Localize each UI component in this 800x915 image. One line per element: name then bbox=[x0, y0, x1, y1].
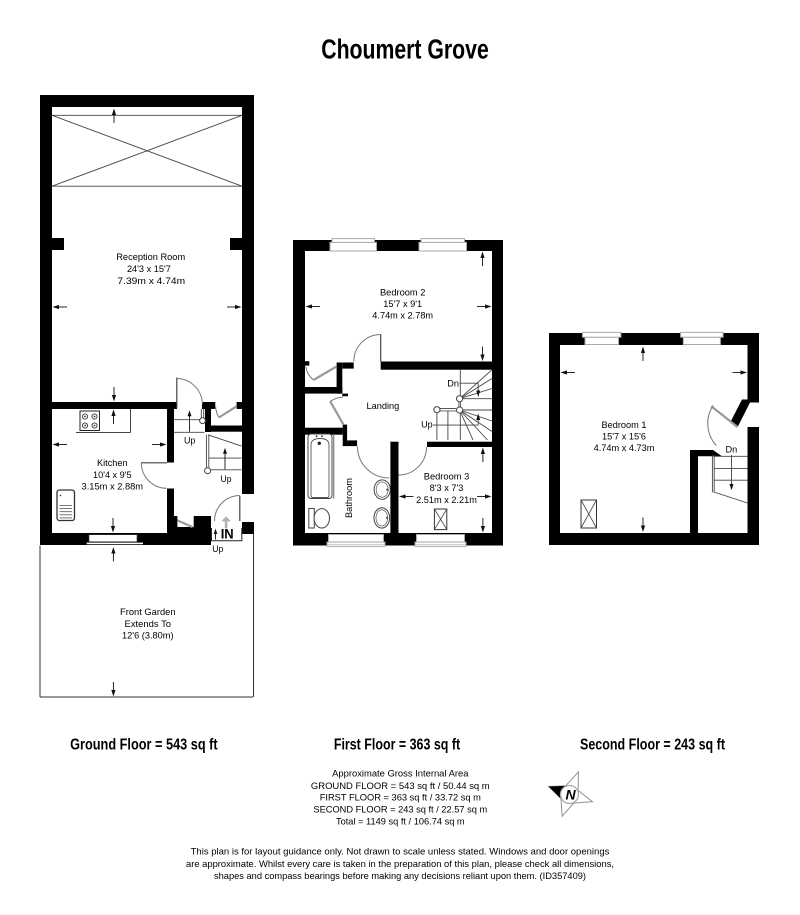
svg-text:Kitchen: Kitchen bbox=[97, 458, 128, 468]
svg-text:15'7 x 15'6: 15'7 x 15'6 bbox=[602, 431, 646, 441]
svg-text:Approximate Gross Internal Are: Approximate Gross Internal Area bbox=[332, 768, 469, 778]
svg-text:4.74m x 2.78m: 4.74m x 2.78m bbox=[372, 311, 433, 321]
svg-text:Ground Floor = 543 sq ft: Ground Floor = 543 sq ft bbox=[70, 737, 218, 754]
svg-text:Dn: Dn bbox=[447, 379, 459, 390]
svg-text:10'4 x 9'5: 10'4 x 9'5 bbox=[93, 470, 132, 480]
svg-text:IN: IN bbox=[221, 526, 234, 541]
svg-text:3.15m x 2.88m: 3.15m x 2.88m bbox=[82, 482, 144, 492]
svg-text:Landing: Landing bbox=[367, 401, 400, 411]
svg-text:FIRST FLOOR = 363 sq ft / 33.7: FIRST FLOOR = 363 sq ft / 33.72 sq m bbox=[320, 793, 481, 803]
svg-text:Bedroom 3: Bedroom 3 bbox=[424, 471, 470, 481]
svg-text:N: N bbox=[565, 787, 576, 803]
svg-text:Extends To: Extends To bbox=[125, 619, 172, 629]
svg-text:Dn: Dn bbox=[726, 445, 738, 456]
svg-text:SECOND FLOOR = 243 sq ft / 22.: SECOND FLOOR = 243 sq ft / 22.57 sq m bbox=[313, 805, 487, 815]
svg-text:12'6 (3.80m): 12'6 (3.80m) bbox=[122, 631, 174, 641]
svg-text:4.74m x 4.73m: 4.74m x 4.73m bbox=[594, 443, 655, 453]
svg-text:Up: Up bbox=[212, 544, 223, 555]
svg-text:15'7 x 9'1: 15'7 x 9'1 bbox=[383, 299, 422, 309]
svg-text:are approximate. Whilst every: are approximate. Whilst every care is ta… bbox=[186, 859, 614, 869]
svg-text:shapes and compass bearings be: shapes and compass bearings before makin… bbox=[214, 871, 586, 881]
svg-text:Up: Up bbox=[221, 474, 232, 485]
svg-text:Front Garden: Front Garden bbox=[120, 607, 176, 617]
svg-text:7.39m x 4.74m: 7.39m x 4.74m bbox=[117, 276, 185, 286]
svg-text:Reception Room: Reception Room bbox=[116, 252, 185, 262]
svg-text:Total = 1149 sq ft / 106.74 sq: Total = 1149 sq ft / 106.74 sq m bbox=[336, 816, 465, 826]
svg-text:Bedroom 1: Bedroom 1 bbox=[602, 420, 647, 430]
svg-text:Up: Up bbox=[184, 436, 196, 447]
svg-text:Bedroom 2: Bedroom 2 bbox=[380, 288, 426, 298]
svg-text:Choumert Grove: Choumert Grove bbox=[321, 34, 489, 65]
svg-text:This plan is for layout guidan: This plan is for layout guidance only. N… bbox=[191, 847, 610, 857]
svg-text:Bathroom: Bathroom bbox=[344, 478, 354, 518]
svg-text:First Floor = 363 sq ft: First Floor = 363 sq ft bbox=[334, 737, 460, 754]
svg-text:Up: Up bbox=[421, 420, 433, 431]
svg-text:2.51m x 2.21m: 2.51m x 2.21m bbox=[416, 495, 477, 505]
svg-text:8'3 x 7'3: 8'3 x 7'3 bbox=[430, 483, 464, 493]
svg-text:24'3 x 15'7: 24'3 x 15'7 bbox=[127, 264, 171, 274]
svg-text:Second Floor = 243 sq ft: Second Floor = 243 sq ft bbox=[580, 737, 725, 754]
svg-text:GROUND FLOOR = 543 sq ft / 50.: GROUND FLOOR = 543 sq ft / 50.44 sq m bbox=[311, 781, 490, 791]
